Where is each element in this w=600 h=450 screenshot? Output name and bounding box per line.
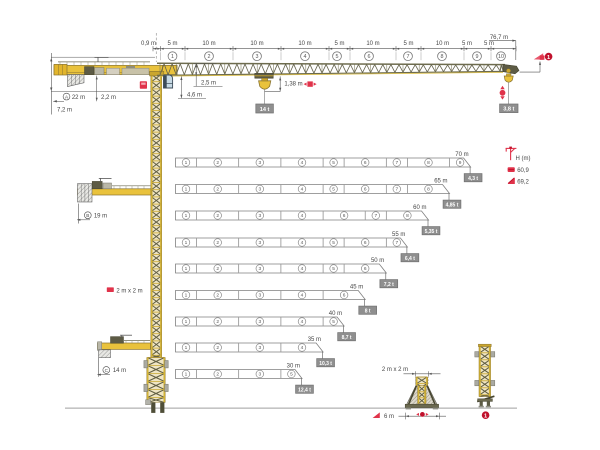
- svg-text:70 m: 70 m: [455, 152, 468, 158]
- svg-text:7: 7: [395, 160, 398, 166]
- svg-text:5: 5: [332, 266, 335, 272]
- svg-text:6: 6: [364, 266, 367, 272]
- svg-text:55 m: 55 m: [392, 232, 405, 238]
- svg-text:5: 5: [336, 54, 339, 60]
- svg-text:6: 6: [364, 187, 367, 193]
- svg-text:10 m: 10 m: [298, 41, 311, 47]
- svg-text:5 m: 5 m: [462, 41, 472, 47]
- svg-text:3: 3: [258, 293, 261, 299]
- svg-text:7: 7: [395, 240, 398, 246]
- svg-text:3: 3: [258, 160, 261, 166]
- svg-text:1: 1: [185, 160, 188, 166]
- svg-text:8,7 t: 8,7 t: [342, 335, 352, 341]
- svg-text:1: 1: [547, 55, 550, 61]
- svg-text:3: 3: [258, 266, 261, 272]
- svg-text:8: 8: [427, 160, 430, 166]
- svg-text:2: 2: [216, 319, 219, 325]
- svg-text:1,38 m: 1,38 m: [284, 82, 302, 88]
- svg-text:10,3 t: 10,3 t: [319, 361, 332, 367]
- svg-text:4: 4: [301, 213, 304, 219]
- svg-text:2: 2: [216, 187, 219, 193]
- svg-text:4: 4: [304, 54, 307, 60]
- svg-text:40 m: 40 m: [329, 311, 342, 317]
- svg-text:6: 6: [343, 213, 346, 219]
- svg-text:5,35 t: 5,35 t: [425, 229, 438, 235]
- svg-text:2: 2: [216, 266, 219, 272]
- svg-text:35 m: 35 m: [308, 337, 321, 343]
- svg-text:5: 5: [332, 187, 335, 193]
- svg-text:3: 3: [258, 319, 261, 325]
- svg-text:45 m: 45 m: [350, 284, 363, 290]
- svg-text:2: 2: [216, 345, 219, 351]
- svg-text:2,2 m: 2,2 m: [101, 95, 116, 101]
- svg-text:30 m: 30 m: [287, 363, 300, 369]
- svg-text:10 m: 10 m: [202, 41, 215, 47]
- svg-text:14 m: 14 m: [113, 368, 126, 374]
- svg-text:2,5 m: 2,5 m: [201, 81, 216, 87]
- svg-text:6: 6: [364, 240, 367, 246]
- svg-text:4: 4: [301, 293, 304, 299]
- svg-text:1: 1: [185, 372, 188, 378]
- svg-text:5 m: 5 m: [484, 41, 494, 47]
- svg-text:5: 5: [332, 319, 335, 325]
- svg-text:8: 8: [441, 54, 444, 60]
- svg-text:14 t: 14 t: [260, 107, 270, 113]
- svg-text:1: 1: [185, 345, 188, 351]
- svg-text:7,2 m: 7,2 m: [57, 108, 72, 114]
- svg-text:4,85 t: 4,85 t: [446, 202, 459, 208]
- svg-text:1: 1: [185, 319, 188, 325]
- svg-text:2: 2: [216, 160, 219, 166]
- svg-text:4,6 m: 4,6 m: [187, 93, 202, 99]
- svg-text:1: 1: [185, 213, 188, 219]
- svg-text:6,4 t: 6,4 t: [405, 256, 415, 262]
- svg-text:3,8 t: 3,8 t: [503, 107, 514, 113]
- svg-text:0,9 m: 0,9 m: [141, 41, 156, 47]
- svg-text:3: 3: [256, 54, 259, 60]
- svg-text:2: 2: [208, 54, 211, 60]
- svg-text:2: 2: [216, 293, 219, 299]
- svg-text:8: 8: [427, 187, 430, 193]
- svg-text:6: 6: [343, 293, 346, 299]
- svg-text:9: 9: [459, 160, 462, 166]
- svg-text:3: 3: [258, 240, 261, 246]
- svg-text:5 m: 5 m: [334, 41, 344, 47]
- svg-text:1: 1: [484, 413, 487, 419]
- svg-text:60,9: 60,9: [517, 168, 529, 174]
- svg-text:4: 4: [301, 160, 304, 166]
- svg-text:6 m: 6 m: [384, 414, 394, 420]
- svg-text:6: 6: [364, 160, 367, 166]
- svg-text:69,2: 69,2: [517, 179, 529, 185]
- svg-text:10 m: 10 m: [366, 41, 379, 47]
- svg-text:19 m: 19 m: [94, 213, 107, 219]
- svg-text:5: 5: [332, 240, 335, 246]
- svg-text:2: 2: [216, 372, 219, 378]
- svg-text:3: 3: [258, 372, 261, 378]
- svg-text:4: 4: [301, 240, 304, 246]
- svg-text:1: 1: [185, 266, 188, 272]
- svg-text:5: 5: [332, 160, 335, 166]
- svg-text:4: 4: [301, 266, 304, 272]
- svg-text:9: 9: [476, 54, 479, 60]
- svg-text:2: 2: [216, 240, 219, 246]
- svg-text:10: 10: [498, 54, 504, 60]
- svg-text:65 m: 65 m: [434, 178, 447, 184]
- svg-text:5 m: 5 m: [167, 41, 177, 47]
- svg-text:5 m: 5 m: [403, 41, 413, 47]
- svg-text:6: 6: [368, 54, 371, 60]
- svg-text:1: 1: [185, 293, 188, 299]
- svg-text:12,4 t: 12,4 t: [298, 387, 311, 393]
- svg-text:7,2 t: 7,2 t: [384, 282, 394, 288]
- svg-text:1: 1: [171, 54, 174, 60]
- svg-text:10 m: 10 m: [436, 41, 449, 47]
- svg-text:4: 4: [301, 187, 304, 193]
- svg-text:2: 2: [216, 213, 219, 219]
- svg-text:2 m x 2 m: 2 m x 2 m: [382, 367, 408, 373]
- svg-text:1: 1: [185, 240, 188, 246]
- svg-text:H (m): H (m): [516, 156, 531, 162]
- svg-text:7: 7: [407, 54, 410, 60]
- svg-text:60 m: 60 m: [413, 205, 426, 211]
- svg-text:B: B: [86, 213, 89, 218]
- svg-text:7: 7: [374, 213, 377, 219]
- svg-text:4: 4: [301, 345, 304, 351]
- svg-text:22 m: 22 m: [72, 95, 85, 101]
- svg-text:8 t: 8 t: [365, 308, 371, 314]
- svg-text:2 m x 2 m: 2 m x 2 m: [116, 289, 142, 295]
- svg-text:3: 3: [258, 345, 261, 351]
- svg-text:3: 3: [258, 213, 261, 219]
- svg-text:1: 1: [185, 187, 188, 193]
- svg-text:4: 4: [301, 319, 304, 325]
- svg-text:5: 5: [290, 372, 293, 378]
- svg-text:3: 3: [258, 187, 261, 193]
- svg-text:7: 7: [395, 187, 398, 193]
- svg-text:50 m: 50 m: [371, 258, 384, 264]
- svg-text:10 m: 10 m: [250, 41, 263, 47]
- svg-text:4,3 t: 4,3 t: [468, 176, 478, 182]
- svg-text:8: 8: [406, 213, 409, 219]
